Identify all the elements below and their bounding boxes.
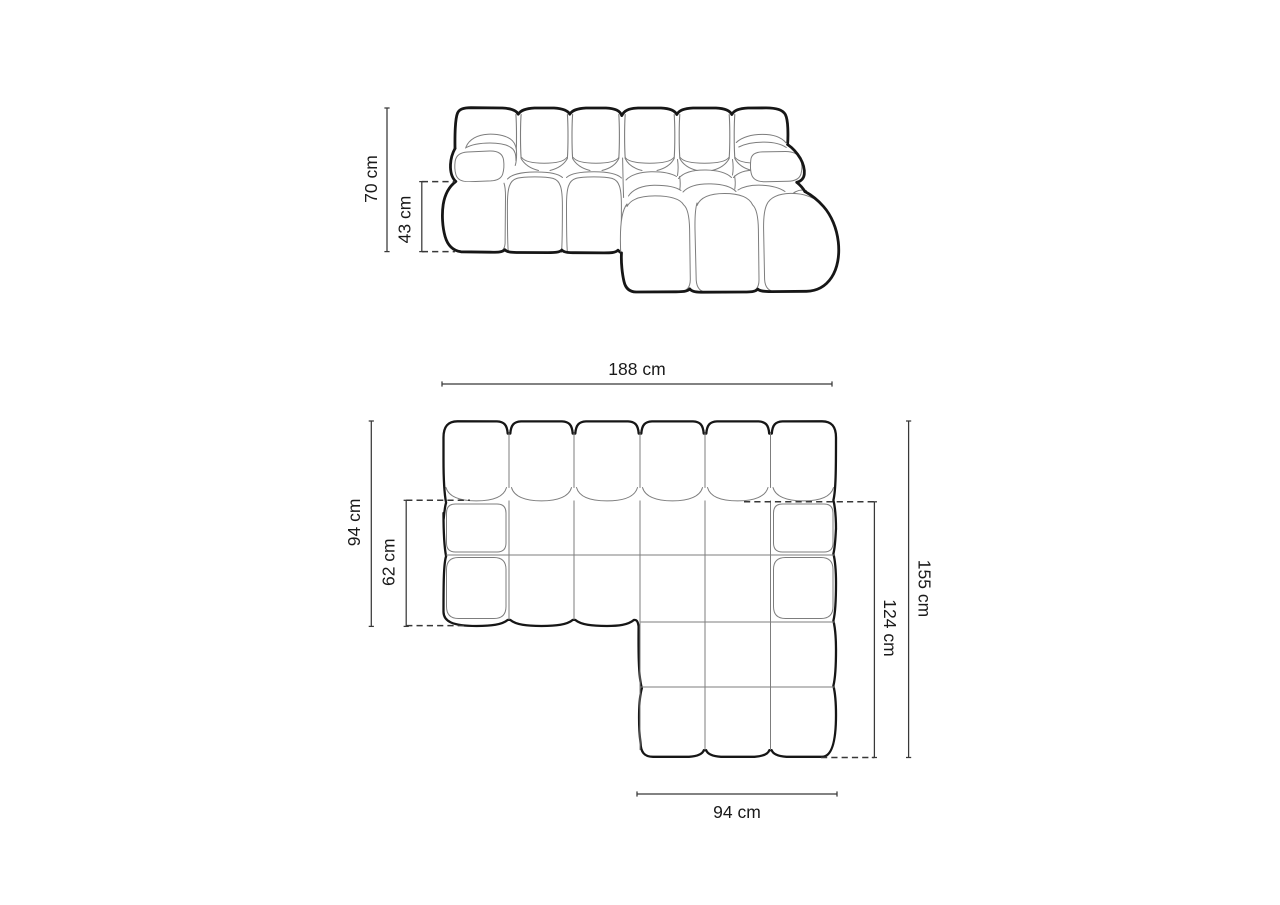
- svg-text:94 cm: 94 cm: [713, 802, 761, 822]
- svg-text:188 cm: 188 cm: [608, 359, 665, 379]
- svg-text:62 cm: 62 cm: [379, 538, 399, 586]
- svg-text:43 cm: 43 cm: [394, 196, 414, 244]
- svg-text:124 cm: 124 cm: [880, 599, 900, 656]
- svg-text:94 cm: 94 cm: [344, 499, 364, 547]
- svg-text:70 cm: 70 cm: [361, 155, 381, 203]
- svg-text:155 cm: 155 cm: [914, 560, 934, 617]
